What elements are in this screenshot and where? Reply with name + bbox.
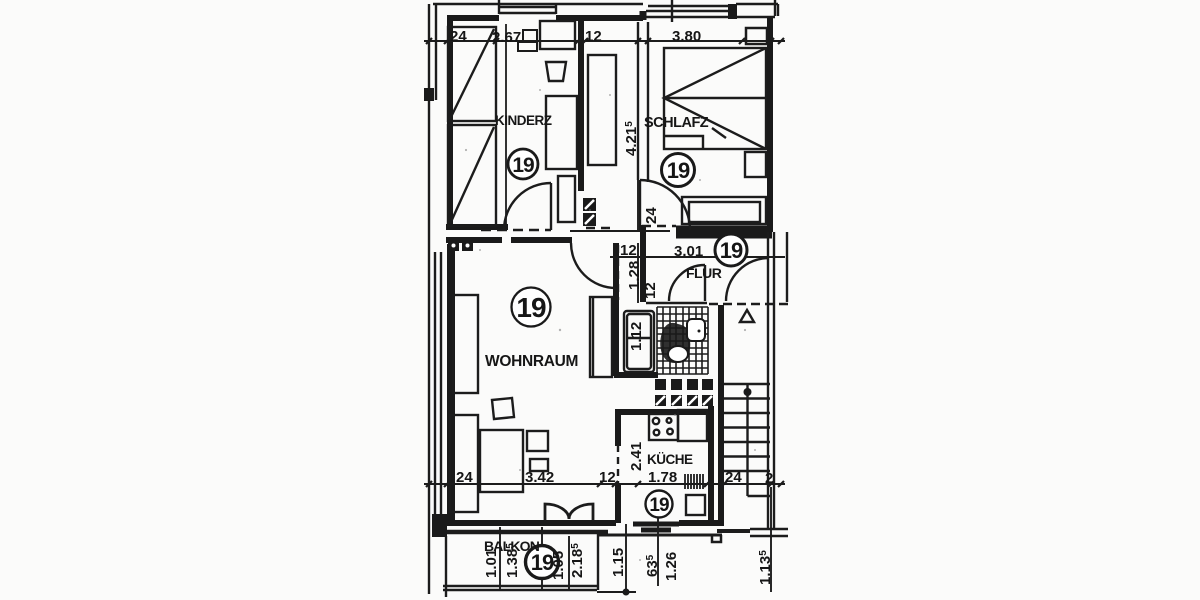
svg-text:2: 2 <box>765 470 773 487</box>
svg-text:19: 19 <box>512 154 534 177</box>
svg-text:19: 19 <box>667 158 690 183</box>
svg-text:2.41: 2.41 <box>628 442 645 471</box>
svg-text:24: 24 <box>456 469 473 486</box>
svg-text:12: 12 <box>642 282 659 299</box>
svg-text:24: 24 <box>450 28 467 45</box>
svg-text:1.15: 1.15 <box>610 548 627 577</box>
svg-text:FLUR: FLUR <box>686 265 722 281</box>
svg-text:SCHLAFZ: SCHLAFZ <box>644 115 709 131</box>
svg-text:24: 24 <box>725 469 742 486</box>
svg-text:2.67: 2.67 <box>492 29 521 46</box>
svg-text:24: 24 <box>643 207 660 224</box>
svg-text:12: 12 <box>599 469 616 486</box>
svg-text:19: 19 <box>720 238 743 263</box>
svg-text:1.05: 1.05 <box>550 551 567 580</box>
svg-text:KÜCHE: KÜCHE <box>647 452 693 467</box>
svg-text:3.01: 3.01 <box>674 243 703 260</box>
svg-text:KINDERZ: KINDERZ <box>495 113 552 128</box>
svg-text:WOHNRAUM: WOHNRAUM <box>485 353 578 370</box>
svg-text:19: 19 <box>516 292 546 323</box>
svg-text:19: 19 <box>649 495 669 516</box>
svg-text:1.12: 1.12 <box>628 322 645 351</box>
svg-text:1.01: 1.01 <box>483 549 500 578</box>
svg-text:3.80: 3.80 <box>672 28 701 45</box>
svg-text:12: 12 <box>585 28 602 45</box>
svg-text:1.26: 1.26 <box>663 552 680 581</box>
svg-text:1.78: 1.78 <box>648 469 677 486</box>
svg-text:1.28: 1.28 <box>626 261 643 290</box>
svg-text:12: 12 <box>620 242 637 259</box>
svg-text:3.42: 3.42 <box>525 469 554 486</box>
